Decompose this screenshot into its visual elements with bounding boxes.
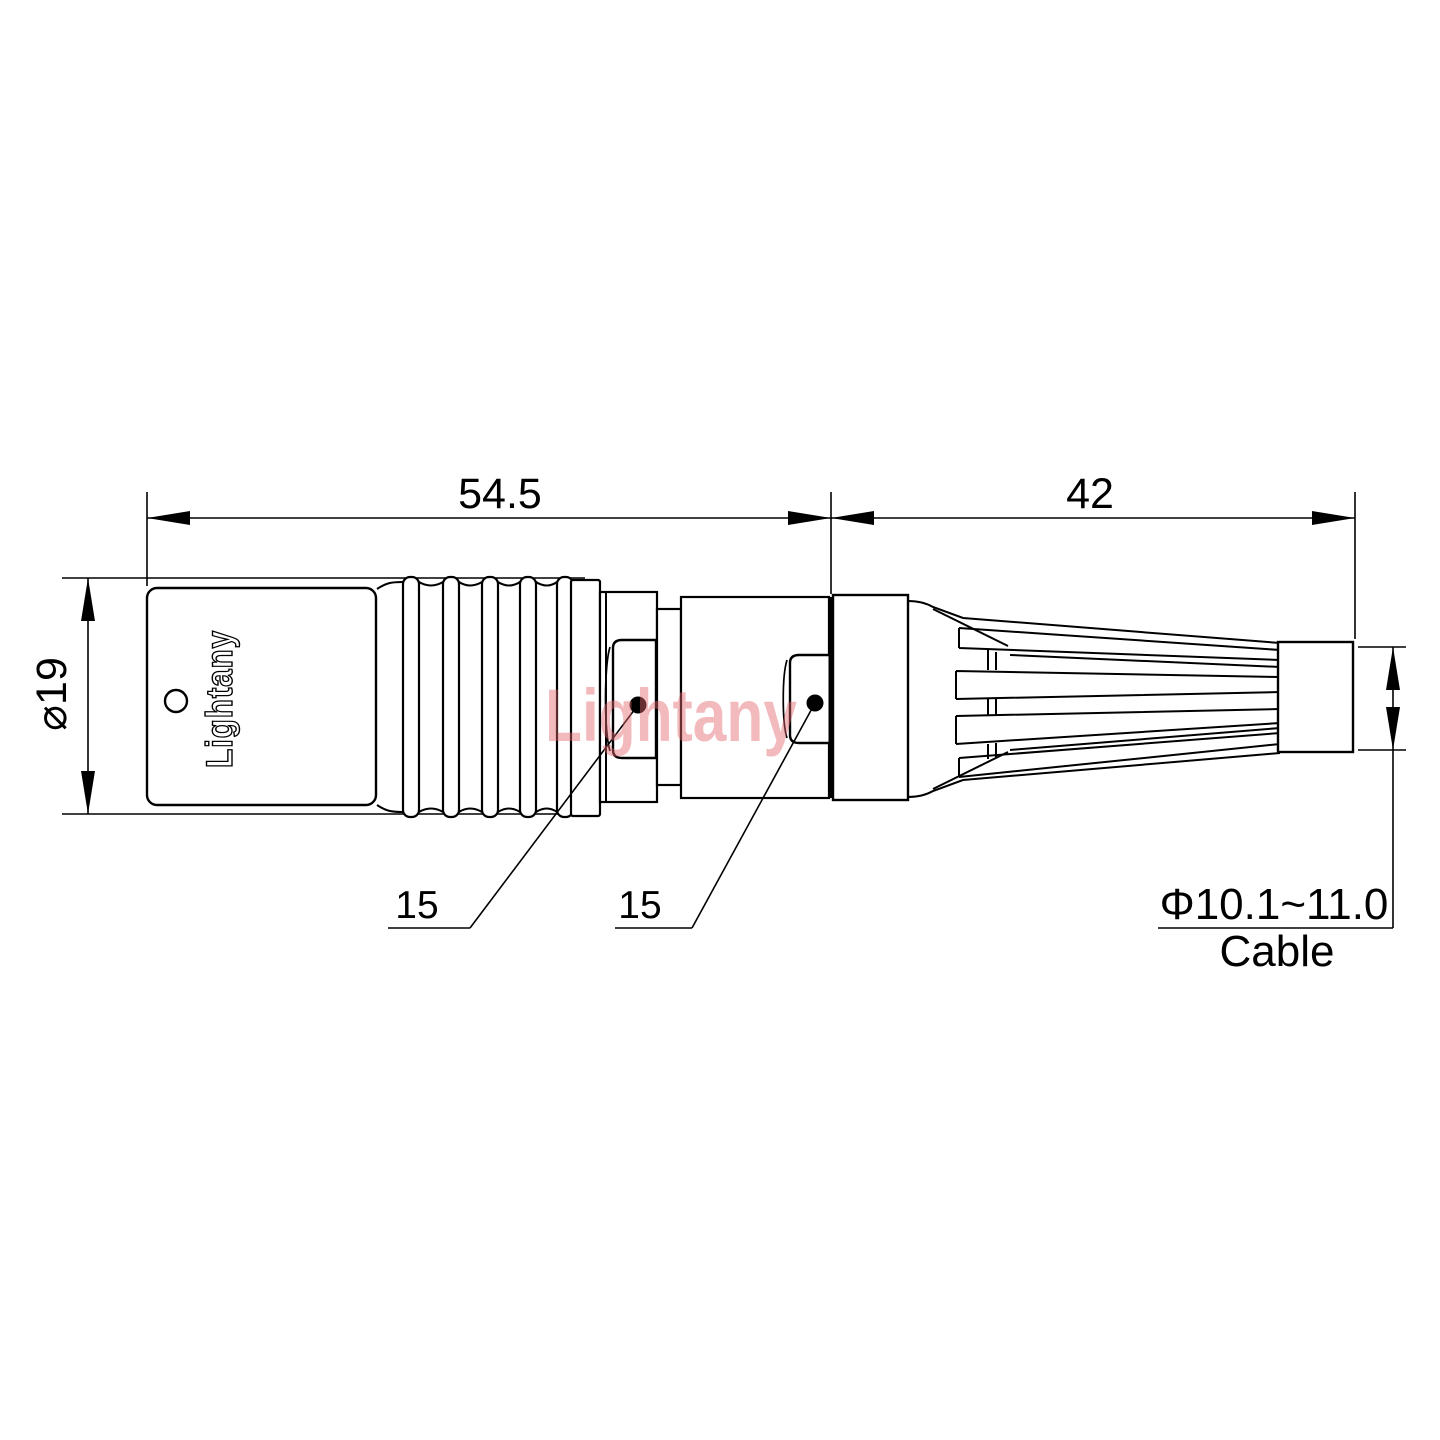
grip-valley-line [498, 809, 520, 813]
arrow-left-icon [831, 511, 874, 525]
arrow-right-icon [1312, 511, 1355, 525]
boot-shoulder-line [933, 609, 1008, 646]
wrench-flat-a-label: 15 [395, 884, 438, 927]
grip-valley-line [377, 805, 403, 812]
arrow-right-icon [788, 511, 831, 525]
grip-valley-line [536, 809, 557, 813]
grip-valley-line [459, 582, 482, 586]
boot-bottom-silhouette [908, 753, 1280, 797]
cable-diameter-label: Φ10.1~11.0 [1160, 880, 1389, 929]
connector-length-label: 54.5 [458, 470, 542, 518]
connector-dimension-drawing: ⌀19 54.5 42 Lightany [0, 0, 1440, 1440]
grip-valley-line [459, 809, 482, 813]
boot-fin-strut [988, 650, 996, 716]
arrow-down-icon [1386, 707, 1400, 750]
connector-plug-body: Lightany [147, 588, 376, 805]
grip-rib [443, 577, 459, 817]
grip-rib [482, 577, 498, 817]
strain-relief-boot [833, 595, 1353, 800]
shell-diameter-label: ⌀19 [28, 657, 76, 731]
grip-rib [403, 577, 419, 817]
technical-drawing-page: ⌀19 54.5 42 Lightany [0, 0, 1440, 1440]
grip-valley-line [536, 582, 557, 586]
arrow-down-icon [81, 771, 95, 814]
arrow-up-icon [81, 578, 95, 621]
leader-dot [807, 695, 824, 712]
boot-fin [956, 671, 1280, 699]
dimension-boot-length: 42 [831, 470, 1355, 639]
brand-logo: Lightany [199, 630, 240, 768]
dimension-connector-length: 54.5 [147, 470, 831, 594]
cable-end [1278, 642, 1353, 752]
boot-fin [956, 709, 1280, 744]
boot-fin [959, 733, 1280, 777]
grip-valley-line [377, 582, 403, 589]
watermark-text: Lightany [545, 674, 797, 757]
boot-length-label: 42 [1066, 470, 1114, 518]
boot-fin-gap-line [1010, 655, 1280, 667]
body-hole [165, 690, 187, 712]
grip-valley-line [419, 809, 443, 813]
grip-rib [520, 577, 536, 817]
arrow-left-icon [147, 511, 190, 525]
grip-valley-line [498, 582, 520, 586]
boot-fin [959, 628, 1280, 660]
arrow-up-icon [1386, 647, 1400, 690]
wrench-flat-b-label: 15 [618, 884, 661, 927]
grip-valley-line [419, 582, 443, 586]
cable-word-label: Cable [1220, 927, 1335, 976]
boot-cap [833, 595, 908, 800]
